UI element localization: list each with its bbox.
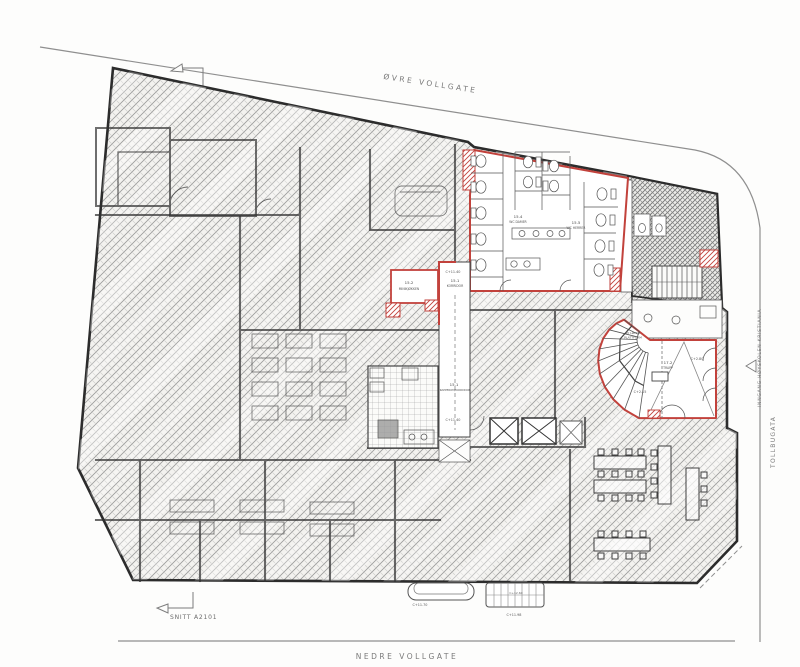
room-label-15-1b-id: 15.1 (450, 382, 459, 387)
elevation-label: C+11.40 (446, 270, 461, 274)
toilet-icon (639, 224, 646, 233)
elevation-label: C+11.98 (507, 613, 522, 617)
elevation-label: C+11.40 (446, 418, 461, 422)
elevation-label: C+11.70 (413, 603, 428, 607)
floor-plan-page: ØVRE VOLLGATE NEDRE VOLLGATE TOLLBUGATA … (0, 0, 800, 667)
elevator-core (490, 418, 582, 444)
technical-band (632, 300, 722, 338)
red-demolition-patch (425, 300, 438, 311)
neighbor-block (621, 176, 722, 308)
street-label-nedre-vollgate: NEDRE VOLLGATE (356, 652, 458, 661)
elevation-label: C+12.60 (509, 591, 522, 595)
room-label-17-2-id: 17.2 (664, 360, 673, 365)
toilet-icon (656, 224, 662, 232)
section-label: SNITT A2101 (170, 614, 217, 621)
shaft-x-brace (439, 440, 470, 462)
room-label-15-2-id: 15.2 (405, 280, 414, 285)
entrance-label: INNGANG HØYSKOLEN KRISTIANIA (756, 309, 763, 407)
room-label-15-1-id: 15.1 (451, 278, 460, 283)
red-demolition-patch (386, 303, 400, 317)
room-label-15-1-name: KORRIDOR (447, 284, 464, 288)
room-label-15-4-id: 15.4 (514, 214, 523, 219)
room-label-15-1b-name: TRAPPEROM/KORRIDOR (437, 388, 470, 392)
room-label-15-2-name: MINIKJØKKEN (399, 286, 420, 291)
lift-platform (652, 372, 668, 381)
room-label-17-2-name: TRAPP (662, 366, 673, 370)
elevation-label: C+2.15 (634, 390, 647, 394)
room-label-15-5-name: WC HERRER (567, 226, 587, 230)
lift-note-line1: NY LØFTE- (625, 330, 641, 335)
room-label-15-5-id: 15.5 (572, 220, 581, 225)
kitchen-tiled-area (368, 366, 438, 448)
red-demolition-patch (648, 410, 660, 418)
elevation-label: C+2.80 (691, 357, 704, 361)
lift-note-line2: PLATTFORM (624, 336, 642, 340)
appliance-dark (378, 420, 398, 438)
floor-plan-drawing: ØVRE VOLLGATE NEDRE VOLLGATE TOLLBUGATA … (0, 0, 800, 667)
room-label-15-4-name: WC DAMER (509, 220, 527, 224)
street-label-tollbugata: TOLLBUGATA (770, 416, 777, 469)
red-demolition-patch (700, 250, 718, 267)
straight-stair (652, 266, 702, 298)
